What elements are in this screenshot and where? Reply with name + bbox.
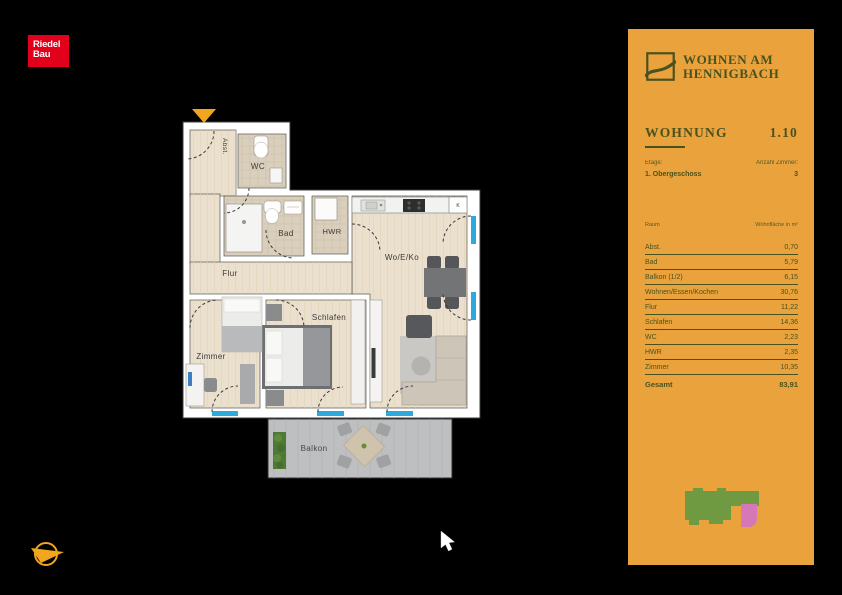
room-area: 6,15 [784, 274, 798, 281]
table-row: Abst.0,70 [645, 240, 798, 255]
entrance-marker-icon [192, 109, 216, 123]
room-name: WC [645, 334, 657, 341]
col-header-room: Raum [645, 222, 660, 228]
room-area: 11,22 [781, 304, 798, 311]
project-name-line2: HENNIGBACH [683, 67, 779, 81]
project-name-line1: WOHNEN AM [683, 53, 779, 67]
room-area: 10,35 [780, 364, 798, 371]
room-label-schlafen: Schlafen [312, 313, 346, 322]
room-name: Abst. [645, 244, 661, 251]
room-label-zimmer: Zimmer [196, 352, 226, 361]
compass-icon [31, 543, 64, 565]
info-panel: WOHNEN AM HENNIGBACH WOHNUNG 1.10 Etage:… [628, 29, 814, 565]
tv [372, 348, 376, 378]
armchair [406, 315, 432, 338]
total-value: 83,91 [779, 380, 798, 389]
room-label-hwr: HWR [322, 227, 341, 236]
floor-mat [240, 364, 255, 404]
shower [226, 204, 262, 252]
table-row: Balkon (1/2)6,15 [645, 270, 798, 285]
mouse-cursor-icon [441, 531, 455, 551]
table-row: Schlafen14,36 [645, 315, 798, 330]
project-logo-icon [645, 51, 676, 82]
floor-flur-v [190, 194, 220, 264]
room-label-abst: Abst. [221, 138, 228, 155]
kitchen-cooktop [403, 199, 425, 212]
table-total-row: Gesamt 83,91 [645, 375, 798, 392]
kitchen-counter: K [352, 197, 467, 213]
room-label-bad: Bad [278, 229, 293, 238]
room-label-balkon: Balkon [301, 444, 328, 453]
rooms-count-value: 3 [756, 171, 798, 178]
room-name: Zimmer [645, 364, 669, 371]
floor-abst [190, 130, 236, 196]
room-area: 0,70 [784, 244, 798, 251]
coffee-table [412, 357, 431, 376]
nightstand [266, 390, 284, 406]
rooms-count-label: Anzahl Zimmer: [756, 160, 798, 166]
room-name: Schlafen [645, 319, 672, 326]
project-logo: WOHNEN AM HENNIGBACH [645, 51, 779, 82]
area-table: Raum Wohnfläche in m² Abst.0,70Bad5,79Ba… [645, 222, 798, 392]
bathroom-sink [284, 201, 302, 214]
room-label-flur: Flur [222, 269, 237, 278]
table-row: Zimmer10,35 [645, 360, 798, 375]
minimap-unit-highlight [741, 504, 757, 527]
room-name: Balkon (1/2) [645, 274, 683, 281]
wardrobe [351, 300, 365, 404]
divider [645, 146, 685, 148]
room-name: Bad [645, 259, 657, 266]
nightstand [266, 304, 282, 321]
total-label: Gesamt [645, 380, 673, 389]
room-name: Flur [645, 304, 657, 311]
room-label-woeko: Wo/E/Ko [385, 253, 419, 262]
room-name: HWR [645, 349, 662, 356]
table-row: Bad5,79 [645, 255, 798, 270]
room-area: 30,76 [780, 289, 798, 296]
room-area: 5,79 [784, 259, 798, 266]
room-label-wc: WC [251, 162, 265, 171]
room-name: Wohnen/Essen/Kochen [645, 289, 718, 296]
room-area: 2,35 [784, 349, 798, 356]
site-minimap [685, 488, 761, 530]
unit-label: WOHNUNG [645, 125, 728, 141]
unit-number: 1.10 [770, 125, 798, 141]
etage-value: 1. Obergeschoss [645, 171, 701, 178]
table-row: WC2,23 [645, 330, 798, 345]
col-header-area: Wohnfläche in m² [755, 222, 798, 228]
table-row: Wohnen/Essen/Kochen30,76 [645, 285, 798, 300]
page: Riedel Bau [0, 0, 842, 595]
room-area: 2,23 [784, 334, 798, 341]
table-row: Flur11,22 [645, 300, 798, 315]
table-row: HWR2,35 [645, 345, 798, 360]
room-area: 14,36 [780, 319, 798, 326]
etage-label: Etage: [645, 160, 701, 166]
washing-machine [315, 198, 337, 220]
desk-chair [204, 378, 217, 392]
